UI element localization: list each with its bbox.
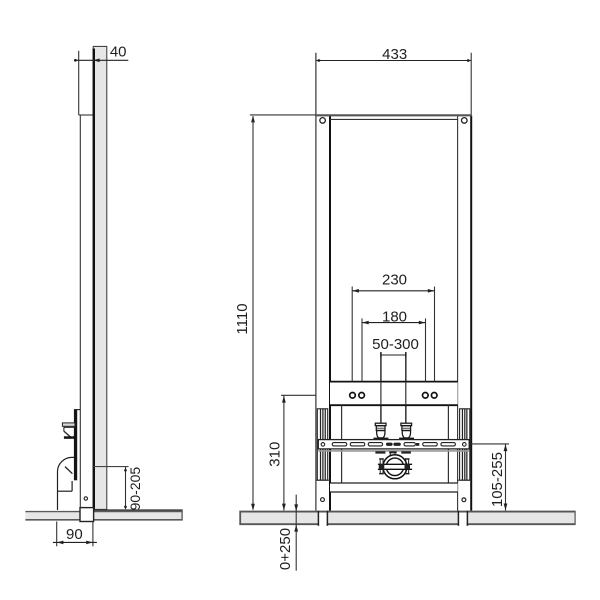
- svg-text:0+250: 0+250: [277, 528, 294, 570]
- svg-text:433: 433: [382, 46, 407, 63]
- svg-text:90: 90: [66, 526, 83, 543]
- svg-text:180: 180: [382, 309, 407, 326]
- svg-text:90-205: 90-205: [127, 467, 143, 511]
- svg-text:310: 310: [266, 442, 283, 467]
- svg-text:230: 230: [382, 272, 407, 289]
- svg-text:40: 40: [110, 44, 127, 61]
- svg-text:105-255: 105-255: [489, 452, 506, 507]
- svg-text:1110: 1110: [234, 303, 251, 334]
- svg-text:50-300: 50-300: [372, 336, 419, 353]
